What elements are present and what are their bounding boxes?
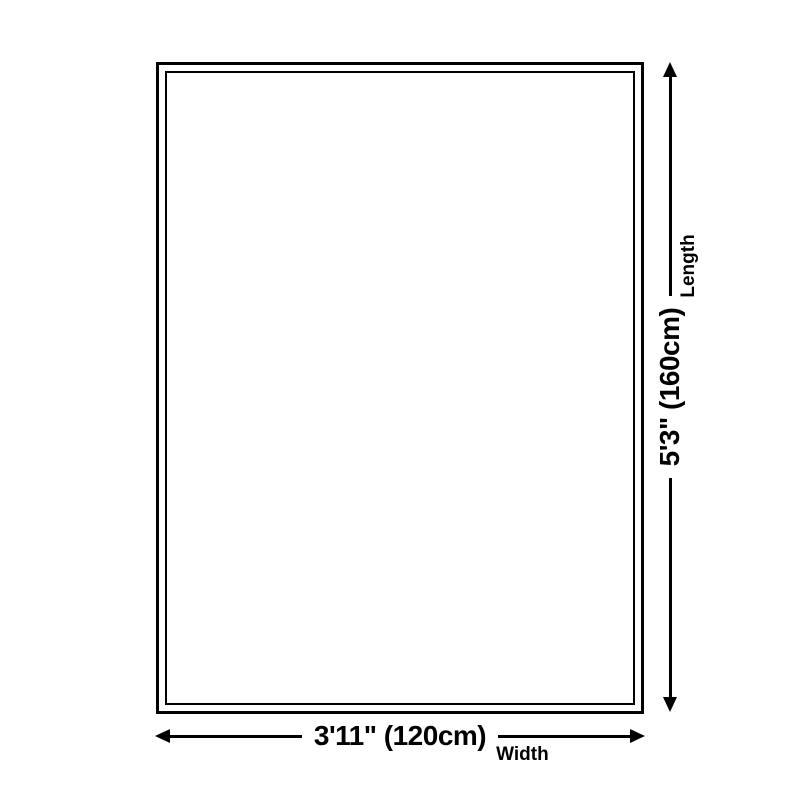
- width-dimension-line-left: [170, 735, 302, 738]
- arrow-right-icon: [630, 729, 645, 743]
- width-value: 3'11" (120cm): [302, 722, 498, 750]
- width-dimension: 3'11" (120cm) Width: [155, 716, 645, 756]
- arrow-down-icon: [663, 697, 677, 712]
- width-dimension-line-right: Width: [498, 735, 630, 738]
- length-dimension: 5'3" (160cm) Length: [650, 62, 690, 712]
- length-dimension-line-upper: Length: [669, 77, 672, 296]
- width-label: Width: [496, 745, 549, 764]
- rug-outline-inner-border: [165, 71, 635, 705]
- length-dimension-line-lower: [669, 478, 672, 697]
- length-label: Length: [679, 234, 698, 297]
- arrow-left-icon: [155, 729, 170, 743]
- arrow-up-icon: [663, 62, 677, 77]
- rug-outline-outer-border: [156, 62, 644, 714]
- length-value: 5'3" (160cm): [656, 296, 684, 479]
